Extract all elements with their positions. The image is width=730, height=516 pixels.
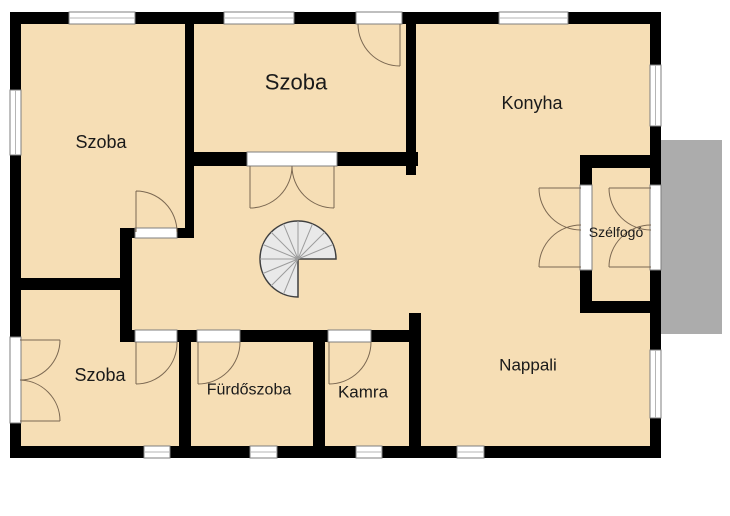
door-frame-szoba1: [135, 228, 177, 238]
wall-szoba1-szoba3: [10, 278, 132, 290]
room-label-nappali: Nappali: [499, 356, 557, 375]
door-frame-furdoszoba: [197, 330, 240, 342]
wall-top-3: [294, 12, 356, 24]
wall-right-1: [650, 24, 661, 65]
wall-top-1: [10, 12, 69, 24]
room-label-furdoszoba: Fürdőszoba: [207, 382, 292, 399]
wall-top-2: [135, 12, 224, 24]
wall-bottom-5: [484, 446, 661, 458]
wall-bottomrooms-1: [120, 330, 135, 342]
wall-szelfogo-left-1: [580, 168, 592, 185]
room-label-kamra: Kamra: [338, 383, 389, 402]
door-frame-szoba3-exterior: [10, 337, 21, 423]
patio-terrace: [658, 140, 722, 334]
room-label-szoba-top-left: Szoba: [75, 132, 127, 152]
door-frame-szoba3: [135, 330, 177, 342]
wall-szoba1-door-right: [177, 228, 194, 238]
wall-left-3: [10, 423, 21, 446]
wall-right-4: [650, 418, 661, 446]
wall-bottom-3: [277, 446, 356, 458]
wall-kamra-nappali: [409, 313, 421, 446]
door-frame-terrace: [356, 12, 402, 24]
wall-top-4: [402, 12, 499, 24]
room-label-konyha: Konyha: [501, 93, 563, 113]
wall-bottomrooms-4: [371, 330, 409, 342]
wall-left-2: [10, 155, 21, 337]
wall-left-1: [10, 24, 21, 90]
room-label-szoba-bottom: Szoba: [74, 365, 126, 385]
door-frame-kamra: [328, 330, 371, 342]
wall-szoba3-furdoszoba: [179, 342, 191, 446]
floor-area: [10, 12, 661, 458]
wall-bottom-4: [382, 446, 457, 458]
wall-szelfogo-top: [580, 155, 661, 168]
wall-bottomrooms-3: [240, 330, 328, 342]
wall-top-5: [568, 12, 661, 24]
wall-szoba1-right: [185, 24, 194, 238]
wall-furdoszoba-kamra: [313, 342, 325, 446]
wall-bottomrooms-2: [177, 330, 197, 342]
wall-szoba2-bottom-1: [185, 152, 248, 166]
floor-plan-drawing: Szoba Szoba Konyha Szélfogó Nappali Szob…: [0, 0, 730, 516]
room-label-szelfogo: Szélfogó: [589, 224, 644, 240]
door-frame-szoba2-double: [247, 152, 337, 166]
wall-szelfogo-bottom: [580, 301, 661, 313]
wall-bottom-2: [170, 446, 250, 458]
wall-bottom-1: [10, 446, 144, 458]
door-frame-szelfogo-entry: [650, 185, 661, 270]
room-label-szoba-middle: Szoba: [265, 70, 328, 95]
wall-szoba2-bottom-2: [337, 152, 418, 166]
floor-plan: Szoba Szoba Konyha Szélfogó Nappali Szob…: [0, 0, 730, 516]
